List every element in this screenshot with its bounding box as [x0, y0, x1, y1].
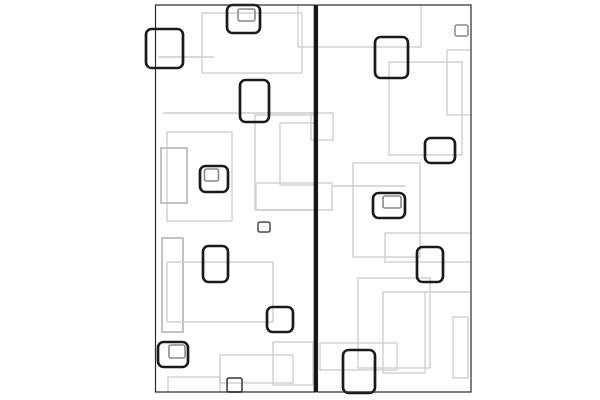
divider-line	[314, 5, 318, 392]
abstract-pattern-canvas	[0, 0, 600, 400]
canvas-background	[0, 0, 600, 400]
artwork-stage	[0, 0, 600, 400]
